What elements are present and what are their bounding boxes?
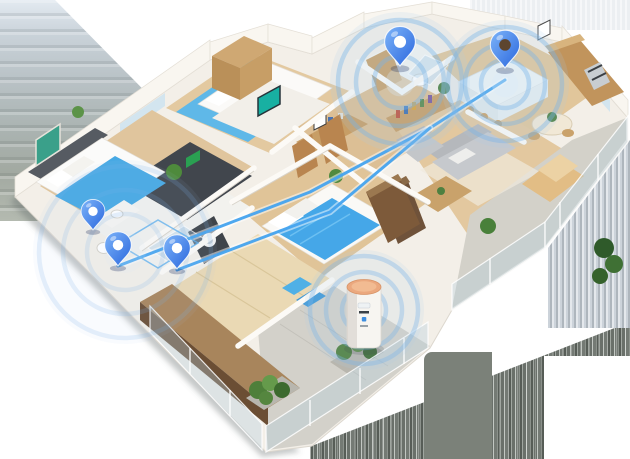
device-body-shade: [347, 287, 357, 348]
device-button-icon: [362, 317, 367, 322]
device-vent: [360, 325, 368, 327]
apartment-floorplan-illustration: [0, 0, 630, 459]
device-display: [359, 311, 369, 314]
device-label: [358, 303, 370, 308]
device-top-inner: [352, 281, 377, 291]
floorplan-scene: [0, 0, 630, 459]
smart-hub-device: [344, 280, 384, 356]
